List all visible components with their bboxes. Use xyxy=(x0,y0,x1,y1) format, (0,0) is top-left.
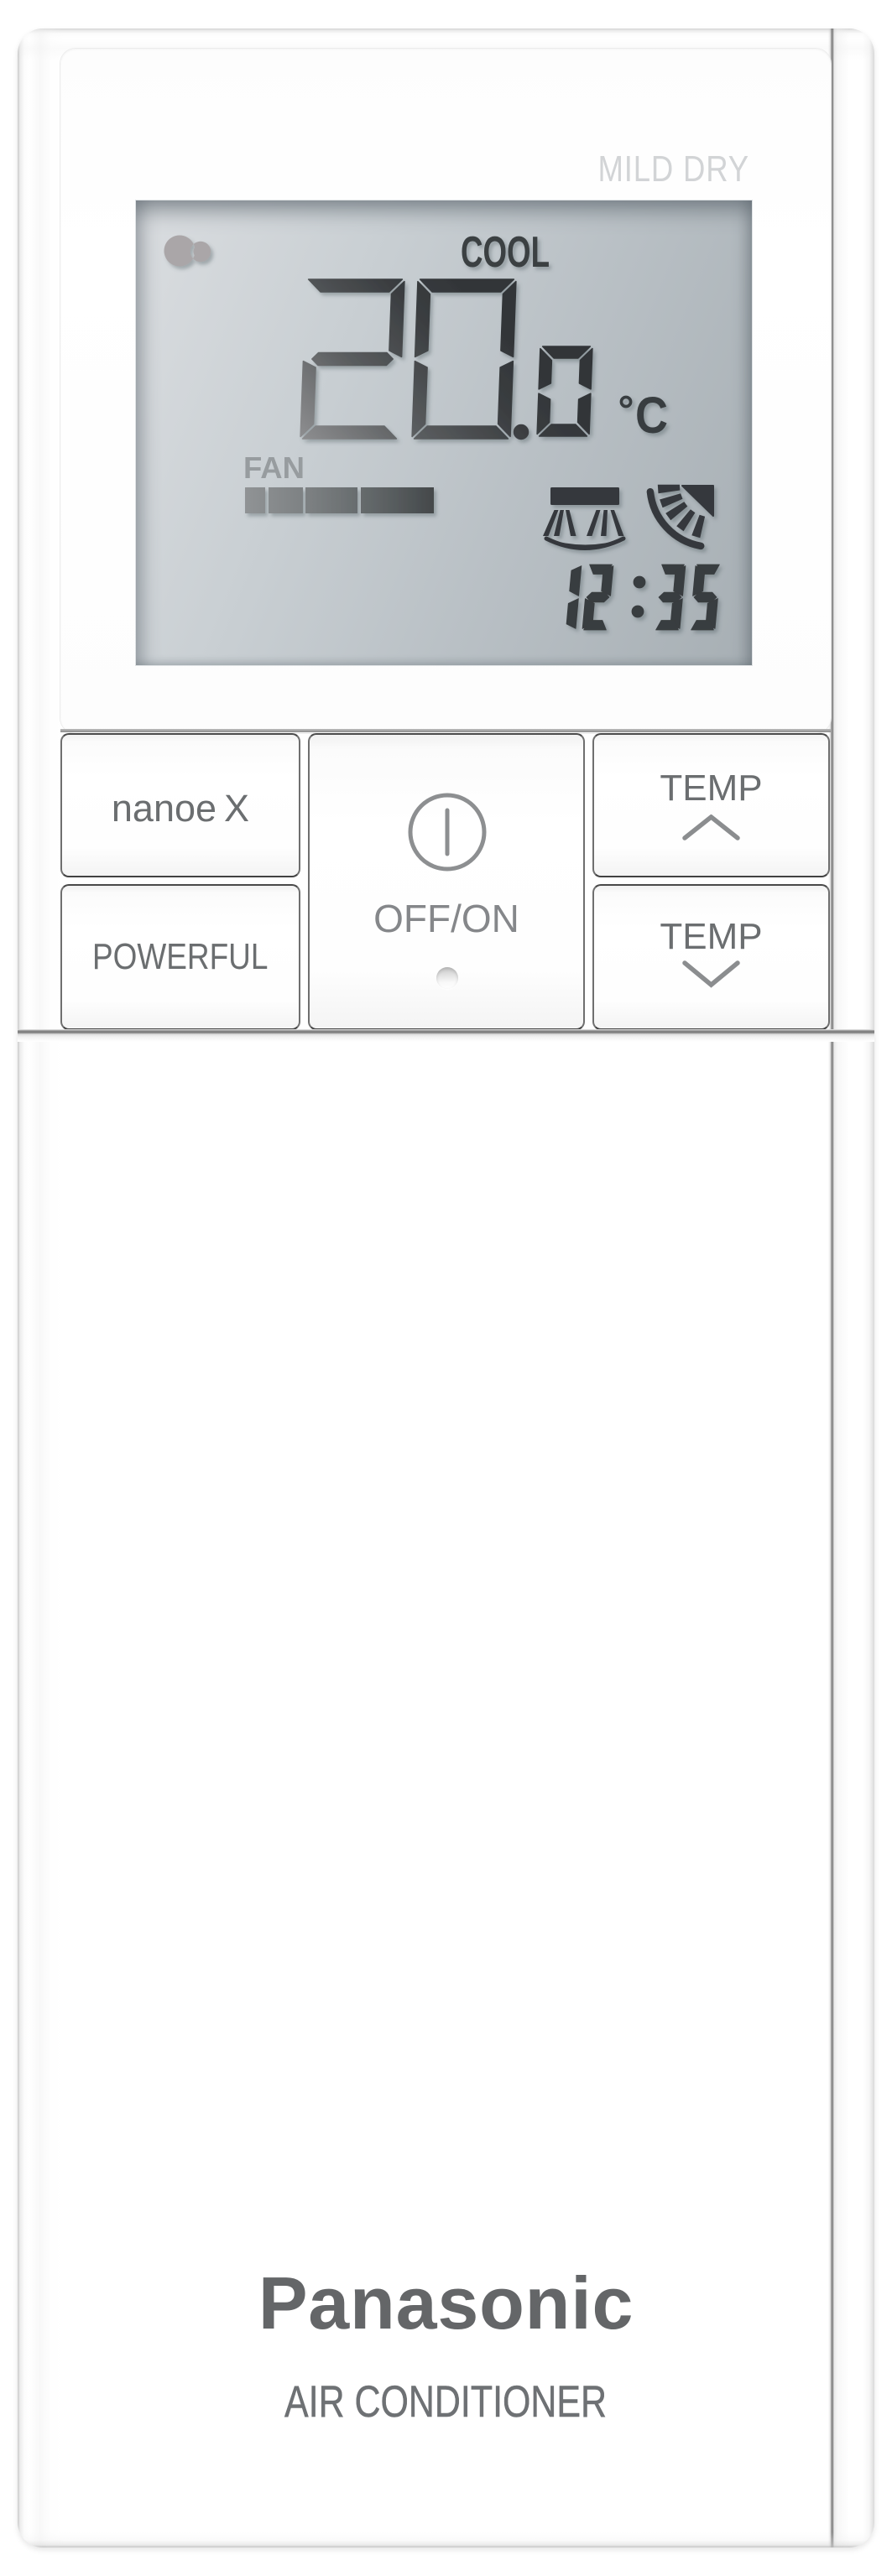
svg-text:COOL: COOL xyxy=(461,228,550,277)
svg-text:C: C xyxy=(635,387,668,444)
svg-text:FAN: FAN xyxy=(243,450,305,485)
